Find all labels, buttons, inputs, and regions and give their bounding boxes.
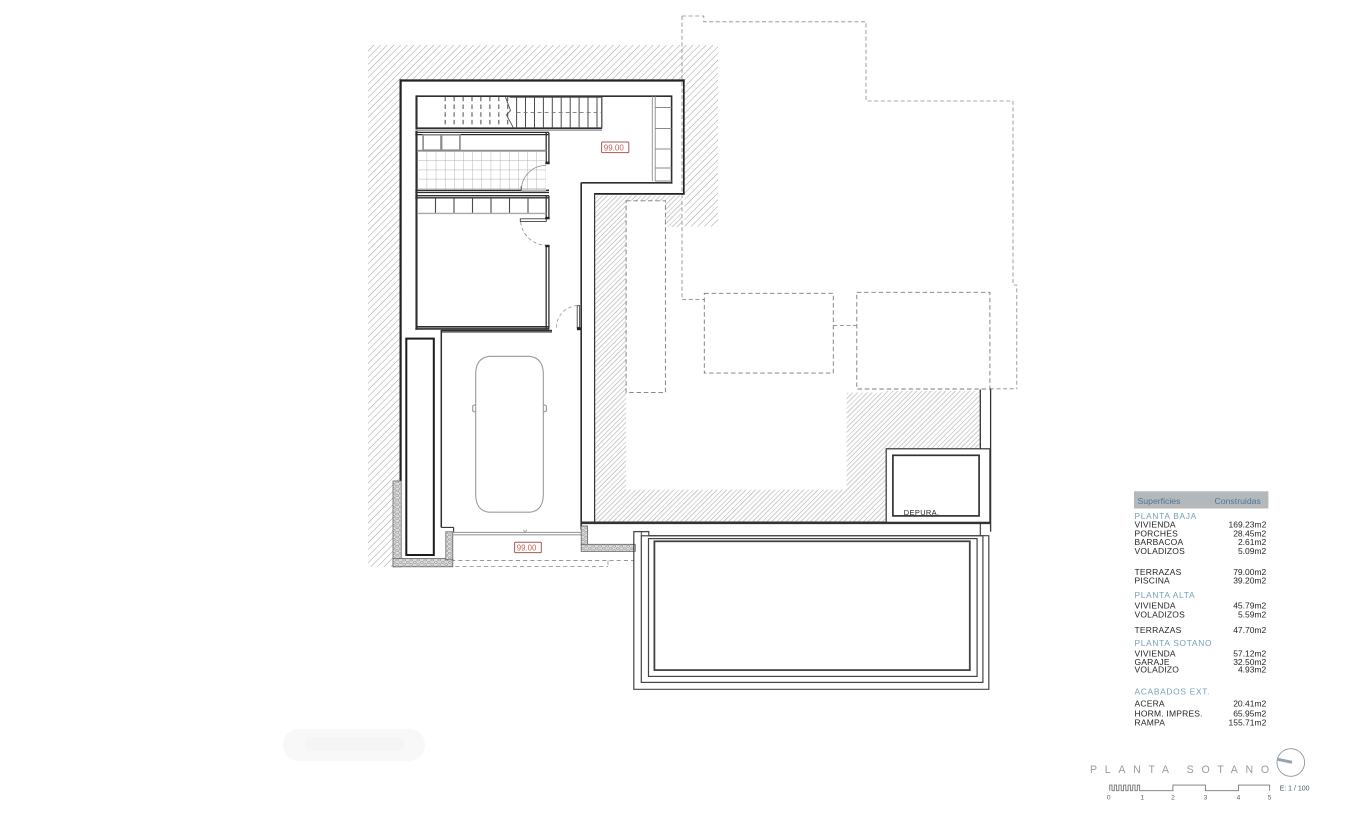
svg-text:20.41m2: 20.41m2: [1233, 698, 1266, 708]
svg-text:TERRAZAS: TERRAZAS: [1135, 625, 1182, 635]
svg-text:155.71m2: 155.71m2: [1228, 718, 1266, 728]
svg-text:ACERA: ACERA: [1135, 698, 1165, 708]
svg-text:1: 1: [1140, 795, 1144, 802]
svg-text:4.93m2: 4.93m2: [1238, 664, 1267, 674]
svg-text:PLANTA ALTA: PLANTA ALTA: [1135, 590, 1196, 600]
svg-text:VOLADIZOS: VOLADIZOS: [1135, 546, 1186, 556]
svg-text:4: 4: [1237, 795, 1241, 802]
svg-text:3: 3: [1204, 795, 1208, 802]
svg-text:VOLADIZO: VOLADIZO: [1135, 664, 1180, 674]
svg-text:DEPURA.: DEPURA.: [904, 508, 940, 517]
svg-text:Superficies: Superficies: [1138, 496, 1182, 506]
svg-text:E: 1 / 100: E: 1 / 100: [1280, 785, 1310, 792]
svg-text:99.00: 99.00: [604, 143, 625, 152]
svg-text:5.59m2: 5.59m2: [1238, 610, 1267, 620]
svg-text:47.70m2: 47.70m2: [1233, 625, 1266, 635]
svg-text:5.09m2: 5.09m2: [1238, 546, 1267, 556]
svg-text:99.00: 99.00: [517, 543, 537, 552]
svg-text:PISCINA: PISCINA: [1135, 576, 1171, 586]
svg-text:VOLADIZOS: VOLADIZOS: [1135, 610, 1186, 620]
svg-text:Construidas: Construidas: [1215, 496, 1262, 506]
svg-text:39.20m2: 39.20m2: [1233, 576, 1266, 586]
svg-text:2: 2: [1171, 795, 1175, 802]
svg-text:ACABADOS EXT.: ACABADOS EXT.: [1135, 687, 1211, 697]
svg-text:PLANTA SOTANO: PLANTA SOTANO: [1135, 638, 1213, 648]
svg-text:RAMPA: RAMPA: [1135, 718, 1166, 728]
svg-text:PLANTA SOTANO: PLANTA SOTANO: [1090, 764, 1277, 776]
svg-text:5: 5: [1268, 795, 1272, 802]
svg-text:0: 0: [1107, 795, 1111, 802]
